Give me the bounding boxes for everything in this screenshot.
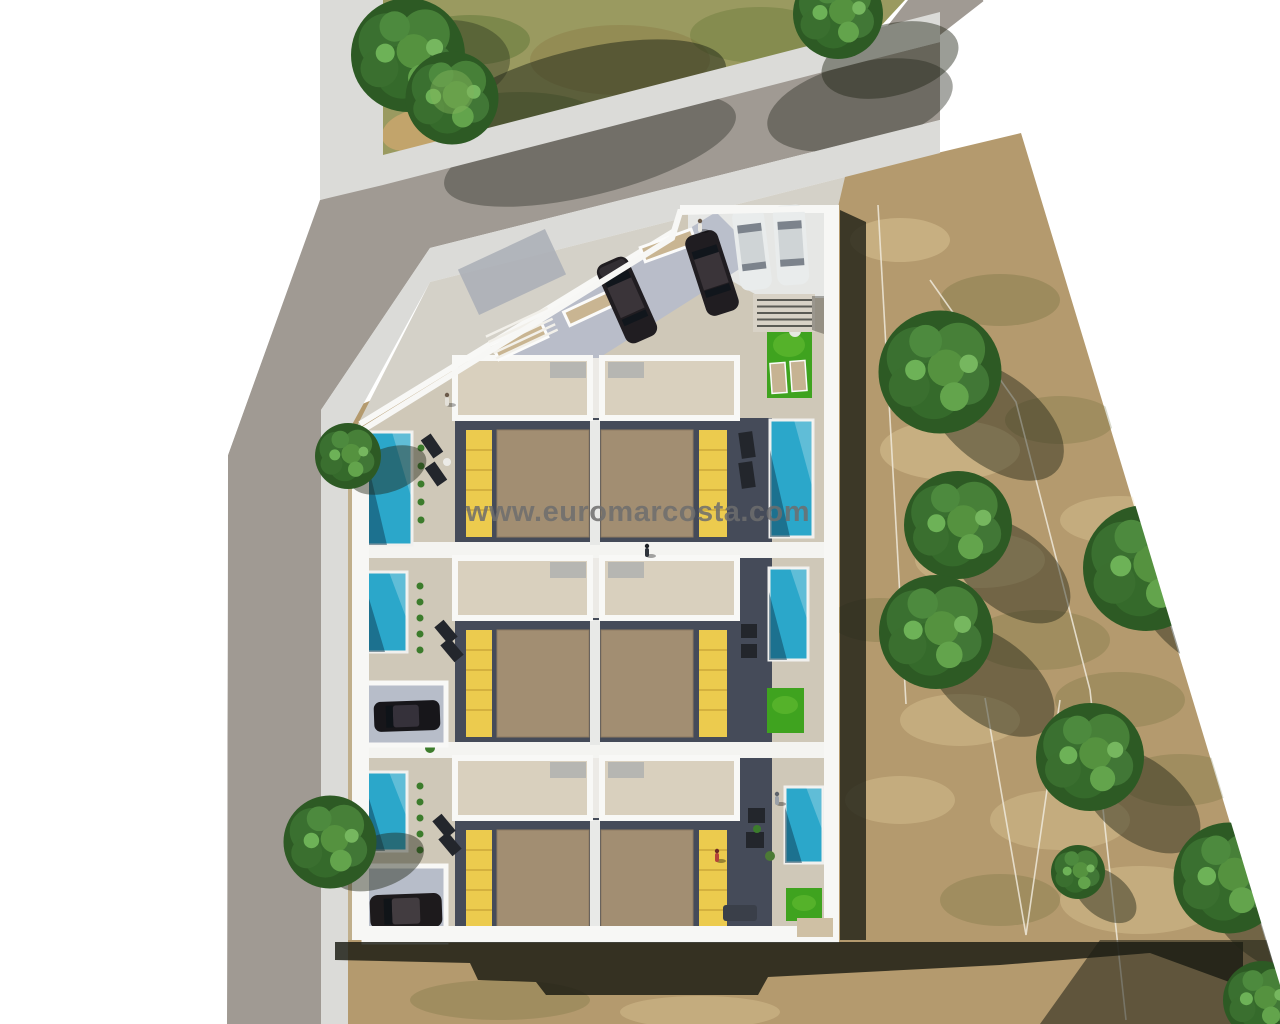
watermark: www.euromarcosta.com xyxy=(465,496,810,528)
plant-pot xyxy=(765,851,775,861)
car-white xyxy=(772,204,810,286)
aerial-render-canvas: www.euromarcosta.com xyxy=(0,0,1280,1024)
tree xyxy=(904,471,1012,579)
unit-divider-wall xyxy=(590,620,600,745)
pergola-roof xyxy=(699,630,727,737)
tree xyxy=(1051,845,1105,899)
sofa xyxy=(723,905,757,921)
roof-square xyxy=(497,630,589,737)
pergola-roof xyxy=(699,830,727,928)
tree xyxy=(879,311,1002,434)
table xyxy=(443,458,451,466)
site-plan-render: www.euromarcosta.com xyxy=(0,0,1280,1024)
roof-square xyxy=(601,830,693,928)
plant-pot xyxy=(753,825,761,833)
paver-pad xyxy=(797,918,833,938)
tree xyxy=(1036,703,1144,811)
car-dark xyxy=(373,700,440,732)
roof-square xyxy=(497,830,589,928)
pergola-roof xyxy=(466,830,492,928)
tree xyxy=(284,796,377,889)
unit-divider-wall xyxy=(590,820,600,926)
tree-highlight xyxy=(430,70,474,114)
tree xyxy=(879,575,993,689)
wall-shadow xyxy=(840,210,866,940)
carport-1 xyxy=(364,683,446,745)
car-dark xyxy=(369,893,442,929)
plaza-stairs-right xyxy=(753,294,824,334)
pergola-roof xyxy=(466,630,492,737)
roof-square xyxy=(601,630,693,737)
tree xyxy=(315,423,381,489)
terrace-slate xyxy=(737,555,772,618)
